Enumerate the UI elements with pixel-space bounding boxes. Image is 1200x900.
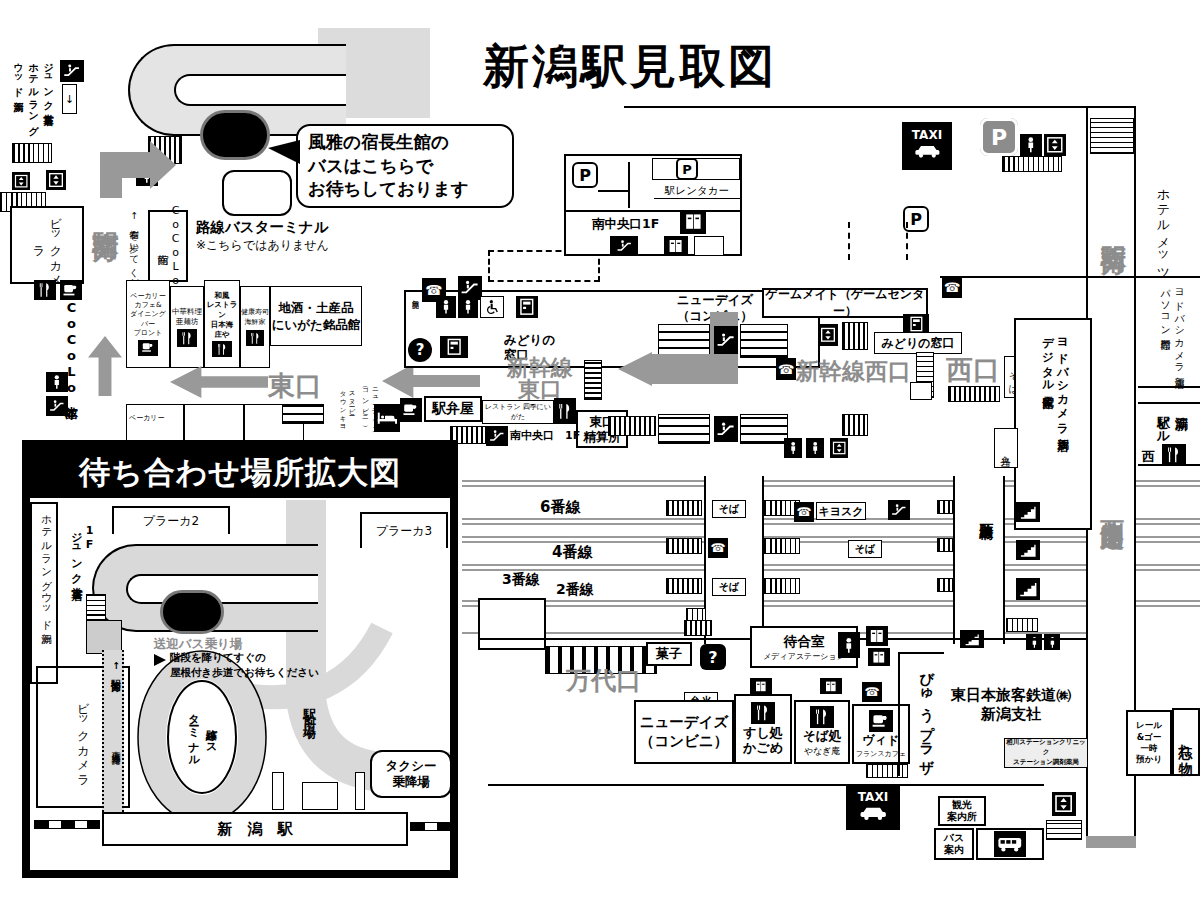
- kiosk-label: キヨスク: [818, 504, 863, 519]
- bento-stand: 弁当: [994, 428, 1018, 468]
- bus-icon: [171, 599, 213, 625]
- escalator-icon: [888, 500, 910, 520]
- entrance-structure: [355, 772, 365, 810]
- bus-terminal-oval-label: 路線バス ターミナル: [170, 682, 234, 786]
- elevator-icon: [830, 438, 848, 458]
- ticket-gates-icon: [658, 324, 710, 358]
- dashed-line: [848, 222, 850, 260]
- toilet-women-icon: [806, 438, 824, 458]
- car-icon: [854, 804, 892, 826]
- plaka3-box: プラーカ3: [360, 512, 448, 548]
- coin-locker-icon: [868, 648, 890, 666]
- escalator-icon: [610, 236, 638, 256]
- platform-6-label: 6番線: [540, 498, 600, 516]
- nishi-kosenkyo-label: 西跨線橋: [962, 512, 996, 596]
- ekinan-homen-left: 駅南方面: [84, 212, 124, 322]
- soba-stand-p6: そば: [712, 500, 746, 518]
- taxi-label: TAXI: [858, 790, 888, 804]
- shop-chuka: 中華料理 亜麺坊: [170, 286, 204, 368]
- junkudo-hotel-label: ジュンク堂書店 ホテルラング ウッド新潟: [8, 56, 56, 152]
- ticket-gates-icon: [584, 360, 602, 400]
- cafe-icon: [400, 398, 422, 422]
- newdays-mandai: ニューデイズ （コンビニ）: [634, 700, 734, 764]
- bus-info-box: バス 案内: [934, 828, 974, 860]
- restaurant-shiki-label: レストラン 四季にいがた: [483, 402, 553, 422]
- arrow-left: [382, 364, 480, 398]
- restaurant-icon: [177, 329, 197, 347]
- railway-track-left: [34, 820, 100, 829]
- toilet-men-icon: [436, 296, 456, 318]
- south-wall-line: [488, 784, 1044, 786]
- sushi-kagome-label: すし処 かごめ: [743, 726, 783, 756]
- kashi-label: 菓子: [656, 645, 682, 663]
- shop-pronto: ベーカリー カフェ& ダイニングバー プロント: [126, 280, 170, 368]
- arrow-shaft: [100, 152, 152, 178]
- arrow-shaft: [650, 354, 738, 384]
- railway-track-right: [410, 822, 450, 831]
- minamichuo-1f-label: 南中央口1F: [592, 216, 670, 232]
- kiosk-box: キヨスク: [816, 502, 866, 520]
- parking-icon-gray: P: [980, 118, 1018, 156]
- information-icon: ?: [408, 338, 432, 362]
- ticket-gates-icon: [740, 414, 788, 444]
- elevator-icon: [1052, 792, 1076, 816]
- entrance-structure: [302, 782, 338, 810]
- mandai-exit-label: 万代口: [566, 664, 656, 694]
- stairs-icon: [666, 500, 702, 516]
- ticket-gates-icon: [740, 324, 788, 358]
- taxi-label: TAXI: [912, 128, 942, 142]
- restaurant-icon: [810, 706, 834, 728]
- rentacar-label: 駅レンタカー: [654, 184, 740, 199]
- ticket-gates-icon: [282, 404, 324, 424]
- stairs-icon: [666, 578, 702, 594]
- ekinan-inset-label: ↑駅南方面: [104, 660, 122, 740]
- arrow-head-right: [150, 141, 176, 189]
- coin-locker-icon: [664, 236, 688, 256]
- p-glyph: P: [991, 125, 1007, 150]
- yodobashi-pc-label: ヨドバシカメラ新潟店 パソコン専門館: [1140, 282, 1186, 402]
- station-building-inset: 新 潟 駅: [102, 812, 408, 846]
- shop-pronto-label: ベーカリー カフェ& ダイニングバー プロント: [127, 292, 169, 337]
- stairs-icon: [666, 538, 702, 554]
- escalator-icon: [714, 416, 738, 442]
- arrow-left: [170, 366, 268, 398]
- cocolo-minami-label: CoCoLo 南館: [148, 210, 188, 282]
- corridor-end-block: [1086, 836, 1136, 848]
- taxi-stand-icon: TAXI: [846, 786, 900, 830]
- ticket-gates-icon: [608, 416, 656, 436]
- shop-chuka-label: 中華料理 亜麺坊: [172, 307, 202, 327]
- phone-icon: ☎: [708, 538, 728, 558]
- soba-stand-p4: そば: [848, 540, 882, 558]
- toilet-men-icon: [784, 438, 802, 458]
- restaurant-icon: [1162, 444, 1186, 466]
- toilet-icon: [1020, 134, 1042, 156]
- soba-label: そば: [855, 542, 875, 556]
- biccamera-inset-label: ビックカメラ: [75, 693, 92, 781]
- snoopy-town-label: スヌーピー タウンキヨ: [332, 386, 356, 434]
- plaka3-label: プラーカ3: [376, 523, 432, 540]
- waiting-room-label: 待合室: [784, 633, 825, 651]
- phone-icon: ☎: [794, 502, 814, 522]
- ticket-gates-icon: [658, 414, 710, 444]
- phone-icon: ☎: [862, 682, 882, 702]
- bus-icon: [994, 831, 1026, 857]
- phone-glyph: ☎: [944, 280, 960, 295]
- inset-title: 待ち合わせ場所拡大図: [79, 452, 401, 494]
- coin-locker-icon: [866, 626, 888, 646]
- page-title: 新潟駅見取図: [450, 36, 810, 98]
- lot-line: [628, 162, 630, 208]
- stairs-icon: [1006, 618, 1038, 632]
- wheelchair-icon: [480, 296, 504, 318]
- platform-block: [86, 620, 122, 654]
- shop-meihinkan: 地酒・土産品 にいがた銘品館: [270, 286, 362, 346]
- stairs-note: 階段を降りてすぐの 屋根付き歩道でお待ちください: [170, 650, 360, 684]
- small-shop-box: [184, 404, 244, 444]
- stairs-icon-black: [1016, 502, 1040, 522]
- coin-locker-icon: [820, 678, 842, 694]
- inset-title-bar: 待ち合わせ場所拡大図: [30, 448, 450, 498]
- callout-text: 風雅の宿長生館の バスはこちらで お待ちしております: [308, 131, 508, 203]
- vie-label: ヴィド: [863, 732, 900, 749]
- plaka2-box: プラーカ2: [112, 506, 230, 534]
- shinkansen-east-label: 新幹線 東口: [498, 356, 582, 402]
- down-arrow: ↓: [65, 93, 74, 106]
- car-icon: [909, 142, 945, 164]
- stairs-icon: [937, 500, 953, 514]
- parking-icon: P: [903, 206, 929, 232]
- stairs-icon: [937, 538, 953, 552]
- wall-line: [1138, 402, 1200, 404]
- bus-terminal-note-title: 路線バスターミナル: [196, 218, 356, 236]
- p-glyph: P: [910, 210, 922, 229]
- stairs-icon: [764, 578, 800, 594]
- p-glyph: P: [682, 162, 692, 177]
- phone-glyph: ☎: [711, 541, 726, 555]
- shop-shoya: 和風 レストラン 日本海 庄や: [204, 280, 240, 368]
- midori-west-label: みどりの窓口: [881, 335, 954, 352]
- stairs-icon: [1046, 820, 1082, 840]
- stairs-icon: [684, 620, 712, 636]
- ekimae-hiroba-label: 駅前広場: [296, 698, 318, 782]
- phone-glyph: ☎: [865, 685, 880, 699]
- lot-box: [694, 236, 724, 256]
- elevator-shaft: ↓: [62, 84, 77, 114]
- bakery-label: ベーカリー: [127, 414, 165, 422]
- shuttle-loop-island: [126, 574, 318, 604]
- toilet-men-icon: [1026, 634, 1042, 650]
- stairs-icon-black: [1016, 578, 1040, 600]
- cafe-icon: [60, 280, 82, 300]
- cafe-icon: [869, 710, 893, 732]
- clinic-box: 相川ステーションクリニック ステーション調剤薬局: [1004, 738, 1088, 768]
- platform-3-label: 3番線: [502, 571, 554, 587]
- rail-and-go-box: レール &ゴー 一時 預かり: [1126, 710, 1172, 776]
- elevator-icon: [12, 172, 30, 190]
- arrow-head-left: [618, 352, 652, 386]
- bus-icon: [212, 120, 258, 150]
- road-island: [222, 170, 292, 216]
- stairs-icon-black: [1016, 540, 1040, 560]
- yodobashi-digital-label: ヨドバシカメラ新潟店 デジタル家電館: [1026, 330, 1070, 490]
- phone-glyph: ☎: [778, 362, 794, 377]
- callout-pointer: [268, 140, 300, 164]
- ticket-machine-icon: [440, 336, 468, 358]
- higashiguchi-label: 東口: [268, 368, 334, 400]
- ekinan-homen-right: 駅南方面: [1090, 226, 1130, 352]
- soba-stand-p2: そば: [712, 578, 746, 596]
- stairs-icon: [842, 322, 868, 350]
- restaurant-icon: [212, 341, 232, 357]
- station-corner-block: [478, 598, 546, 650]
- bus-loop-island: [174, 74, 346, 106]
- media-station-label: メディアステーション: [763, 651, 845, 662]
- escalator-icon: [46, 396, 68, 416]
- jr-east-label: 東日本旅客鉄道㈱ 新潟支社: [940, 682, 1082, 728]
- inset-map: 待ち合わせ場所拡大図 ホテルラングウッド新潟 1F ジュンク堂書店 プラーカ2 …: [22, 440, 458, 878]
- stairs-icon: [764, 538, 800, 554]
- yanagian-label: やなぎ庵: [804, 745, 841, 758]
- escalator-icon: [60, 60, 84, 82]
- shuttle-bus-stop-inset: [160, 590, 224, 634]
- coin-locker-icon: [374, 404, 400, 432]
- minamichuo-label: 南中央口 1F: [510, 428, 590, 444]
- cafe-icon: [138, 340, 158, 356]
- coin-locker-icon: [680, 210, 706, 234]
- toilet-icon: [46, 372, 68, 392]
- bento-label: 弁当: [999, 447, 1013, 449]
- soba-label: そば: [719, 502, 739, 516]
- view-plaza-label: びゅうプラザ: [906, 662, 936, 774]
- coin-locker-icon: [750, 678, 772, 694]
- ticket-window-icon: [903, 314, 929, 334]
- stairs-icon: [842, 414, 868, 436]
- atm-icon: [516, 296, 538, 318]
- p-glyph: P: [579, 166, 591, 185]
- station-label: 新 潟 駅: [218, 820, 293, 839]
- shop-kaisenya: 健康寿司 海鮮家: [240, 286, 270, 368]
- sobadokoro-label: そば処: [803, 728, 841, 745]
- phone-icon: ☎: [942, 276, 962, 298]
- information-icon: ?: [700, 644, 726, 670]
- lost-and-found-box: 忘れ物: [1172, 708, 1200, 776]
- lot-line: [566, 210, 740, 212]
- kiosk-box: [910, 382, 932, 400]
- restaurant-icon: [246, 330, 264, 346]
- escalator-icon: [486, 426, 508, 446]
- hotel-mets-label: ホテルメッツ: [1146, 180, 1172, 278]
- soba-label: そば: [719, 580, 739, 594]
- question-glyph: ?: [416, 341, 425, 359]
- phone-glyph: ☎: [797, 505, 812, 519]
- nishiguchi-label: 西口: [946, 352, 1006, 384]
- plaka2-label: プラーカ2: [143, 513, 199, 530]
- ekibenya-box: 駅弁屋: [424, 396, 482, 422]
- toilet-women-icon: [458, 296, 478, 318]
- question-glyph: ?: [708, 648, 717, 667]
- taxi-stop-box: タクシー 乗降場: [370, 750, 452, 798]
- bus-terminal-note-sub: ※こちらではありません: [196, 237, 356, 253]
- note-arrow: [154, 654, 166, 666]
- shuttle-bus-stop: [200, 110, 270, 160]
- shinkansen-west-label: 新幹線西口: [796, 356, 926, 386]
- midori-west-box: みどりの窓口: [874, 332, 962, 354]
- escalator-icon: [714, 326, 738, 354]
- shop-shoya-label: 和風 レストラン 日本海 庄や: [205, 291, 239, 340]
- restaurant-icon: [34, 280, 56, 300]
- platform-4-label: 4番線: [552, 543, 612, 561]
- soba-yanagian-shop: そば処 やなぎ庵: [794, 700, 850, 764]
- biccamera-main-label: ビックカメラ: [10, 206, 84, 284]
- gamemate-label: ゲームメイト（ゲームセンター）: [764, 286, 926, 320]
- station-map: 新潟駅見取図 ジュンク堂書店 ホテルラング ウッド新潟 ↓ 風雅の宿長生館の バ…: [0, 0, 1200, 900]
- entrance-structure: [272, 772, 284, 810]
- ekibenya-label: 駅弁屋: [432, 400, 474, 418]
- langwood-label: ホテルラングウッド新潟: [34, 508, 54, 678]
- nishi-label: 西: [1142, 448, 1158, 464]
- tourist-info-box: 観光 案内所: [938, 796, 986, 826]
- restaurant-icon: [751, 702, 775, 724]
- lot-line: [598, 190, 630, 192]
- arrow-up: [88, 336, 122, 396]
- elevator-icon: [46, 170, 66, 190]
- taxi-stand-icon: TAXI: [902, 122, 952, 170]
- elevator-icon: [1044, 134, 1066, 156]
- shop-kaisenya-label: 健康寿司 海鮮家: [241, 308, 269, 327]
- west-free-passage-label: 西側自由通路: [1088, 502, 1128, 692]
- stairs-icon: [1090, 118, 1134, 154]
- attendant-icon: [838, 632, 860, 658]
- muji-label: 無印良品: [406, 294, 420, 340]
- parking-icon: P: [676, 158, 698, 180]
- phone-icon: ☎: [776, 358, 796, 380]
- stairs-icon: [937, 578, 953, 592]
- top-wall-line: [624, 106, 1136, 108]
- kashi-shop: 菓子: [646, 642, 692, 666]
- restaurant-shiki-box: レストラン 四季にいがた: [482, 400, 554, 424]
- toilet-women-icon: [1044, 634, 1060, 650]
- platform-2-label: 2番線: [556, 581, 612, 597]
- small-shop-box: ベーカリー: [126, 404, 184, 444]
- stairs-icon: [1002, 156, 1062, 172]
- parking-icon: P: [572, 162, 598, 188]
- restaurant-icon: [554, 398, 576, 424]
- elevator-icon: [818, 324, 838, 346]
- ticket-gates-icon: [948, 386, 1000, 402]
- sushi-kagome-shop: すし処 かごめ: [734, 694, 792, 764]
